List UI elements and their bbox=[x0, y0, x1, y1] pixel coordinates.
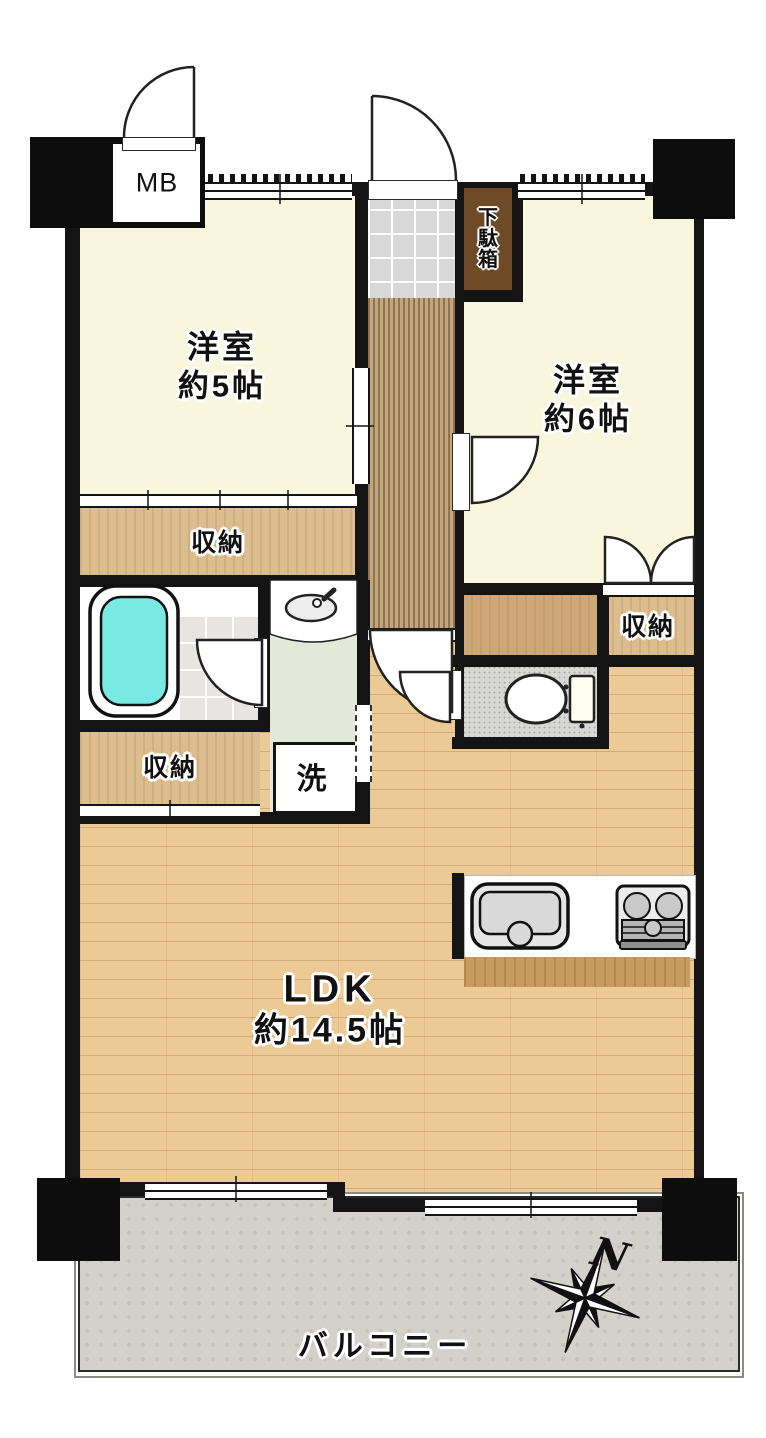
entrance-door-sill bbox=[368, 180, 458, 200]
sliding-door-room5 bbox=[352, 368, 370, 484]
bath-door-leaf bbox=[254, 638, 268, 708]
closet6-label: 収納 bbox=[621, 607, 675, 643]
wall-closet5-bottom bbox=[65, 575, 368, 587]
floor-plan: MB 下駄箱 洋室 約5帖 洋室 約6帖 収納 収納 収納 洗 LDK 約14.… bbox=[0, 0, 766, 1438]
mb-label: MB bbox=[136, 168, 179, 199]
hallway-floor bbox=[368, 298, 455, 630]
storage-box-center bbox=[462, 588, 597, 655]
room6-size: 約6帖 bbox=[544, 394, 632, 439]
closet-bath-label: 収納 bbox=[143, 748, 197, 784]
room5-size: 約5帖 bbox=[178, 361, 266, 406]
louver-marks-right bbox=[520, 174, 645, 182]
toilet-door-leaf bbox=[448, 670, 462, 720]
closet5-label: 収納 bbox=[191, 523, 245, 559]
kitchen-counter bbox=[464, 875, 696, 959]
toilet-room bbox=[462, 665, 597, 737]
pillar-bottom-left bbox=[37, 1178, 120, 1261]
wall-washroom-right bbox=[357, 580, 370, 824]
pillar-bottom-right bbox=[662, 1178, 737, 1261]
entry-tile bbox=[368, 185, 455, 300]
louver-marks-left bbox=[208, 174, 352, 182]
balcony-label: バルコニー bbox=[298, 1321, 472, 1365]
hall-ldk-sill bbox=[368, 628, 455, 642]
wall-right bbox=[694, 182, 704, 1212]
door-frame-room6 bbox=[452, 433, 470, 511]
wall-left bbox=[65, 137, 80, 1196]
shoe-cabinet-label: 下駄箱 bbox=[472, 207, 501, 270]
wall-bath-bottom bbox=[65, 720, 270, 732]
closet-bath-sliding-door bbox=[80, 804, 260, 818]
pillar-top-right bbox=[653, 139, 735, 219]
bathroom-tile bbox=[178, 615, 262, 720]
window-balcony-right bbox=[425, 1198, 637, 1216]
laundry-label: 洗 bbox=[297, 754, 330, 798]
window-balcony-left bbox=[145, 1182, 327, 1200]
kitchen-counter-front bbox=[464, 957, 690, 987]
closet6-door-sill bbox=[603, 583, 694, 597]
closet5-sliding-door bbox=[80, 494, 357, 508]
mb-door-sill bbox=[122, 137, 196, 151]
wall-toilet-bottom bbox=[452, 737, 609, 749]
window-top-left bbox=[205, 182, 352, 200]
kitchen-end-wall bbox=[452, 873, 464, 959]
wall-toilet-top bbox=[452, 655, 609, 667]
window-top-right bbox=[518, 182, 645, 200]
ldk-size: 約14.5帖 bbox=[254, 1003, 406, 1052]
entrance-door-arc bbox=[372, 96, 456, 180]
wall-closet6-bottom bbox=[597, 655, 704, 667]
washroom-folding-door bbox=[355, 705, 372, 782]
mb-door-arc bbox=[124, 67, 194, 137]
